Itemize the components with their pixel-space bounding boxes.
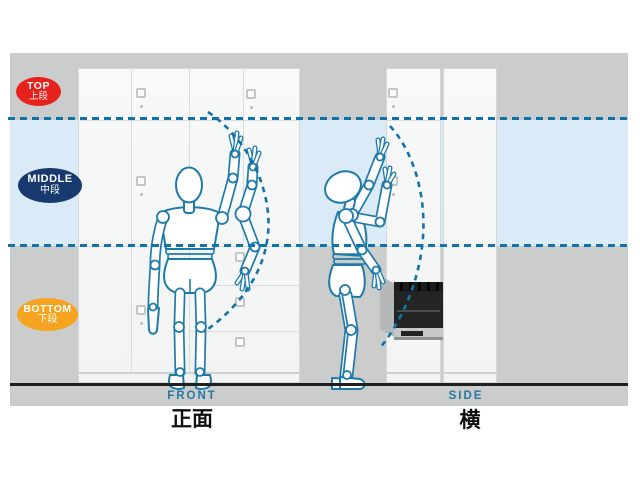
front-view-label-en: FRONT <box>122 390 262 402</box>
zone-badge-middle: MIDDLE 中段 <box>18 168 82 203</box>
door-handle <box>136 88 146 98</box>
door-keyhole-dot <box>392 105 395 108</box>
cabinet-shelf-line <box>79 120 299 121</box>
side-mannequin-figure <box>302 132 410 392</box>
zone-bottom-label-ja: 下段 <box>38 315 58 326</box>
side-view-label-en: SIDE <box>396 390 536 402</box>
floor-line <box>10 383 628 386</box>
zone-badge-bottom: BOTTOM 下段 <box>17 298 78 331</box>
reach-zone-diagram: TOP 上段 MIDDLE 中段 BOTTOM 下段 FRONT 正面 SIDE… <box>0 0 640 480</box>
side-view-label-ja: 横 <box>400 404 540 434</box>
door-keyhole-dot <box>250 106 253 109</box>
zone-top-label-ja: 上段 <box>29 92 48 102</box>
cabinet-shelf-line <box>387 120 440 121</box>
side-cabinet-tall-column <box>443 68 497 383</box>
door-handle <box>388 88 398 98</box>
zone-middle-label-ja: 中段 <box>40 186 60 197</box>
cabinet-base-line <box>444 372 496 374</box>
zone-badge-top: TOP 上段 <box>16 77 61 106</box>
door-handle <box>246 89 256 99</box>
door-keyhole-dot <box>140 105 143 108</box>
front-mannequin-figure <box>130 125 270 393</box>
front-view-label-ja: 正面 <box>122 403 262 433</box>
